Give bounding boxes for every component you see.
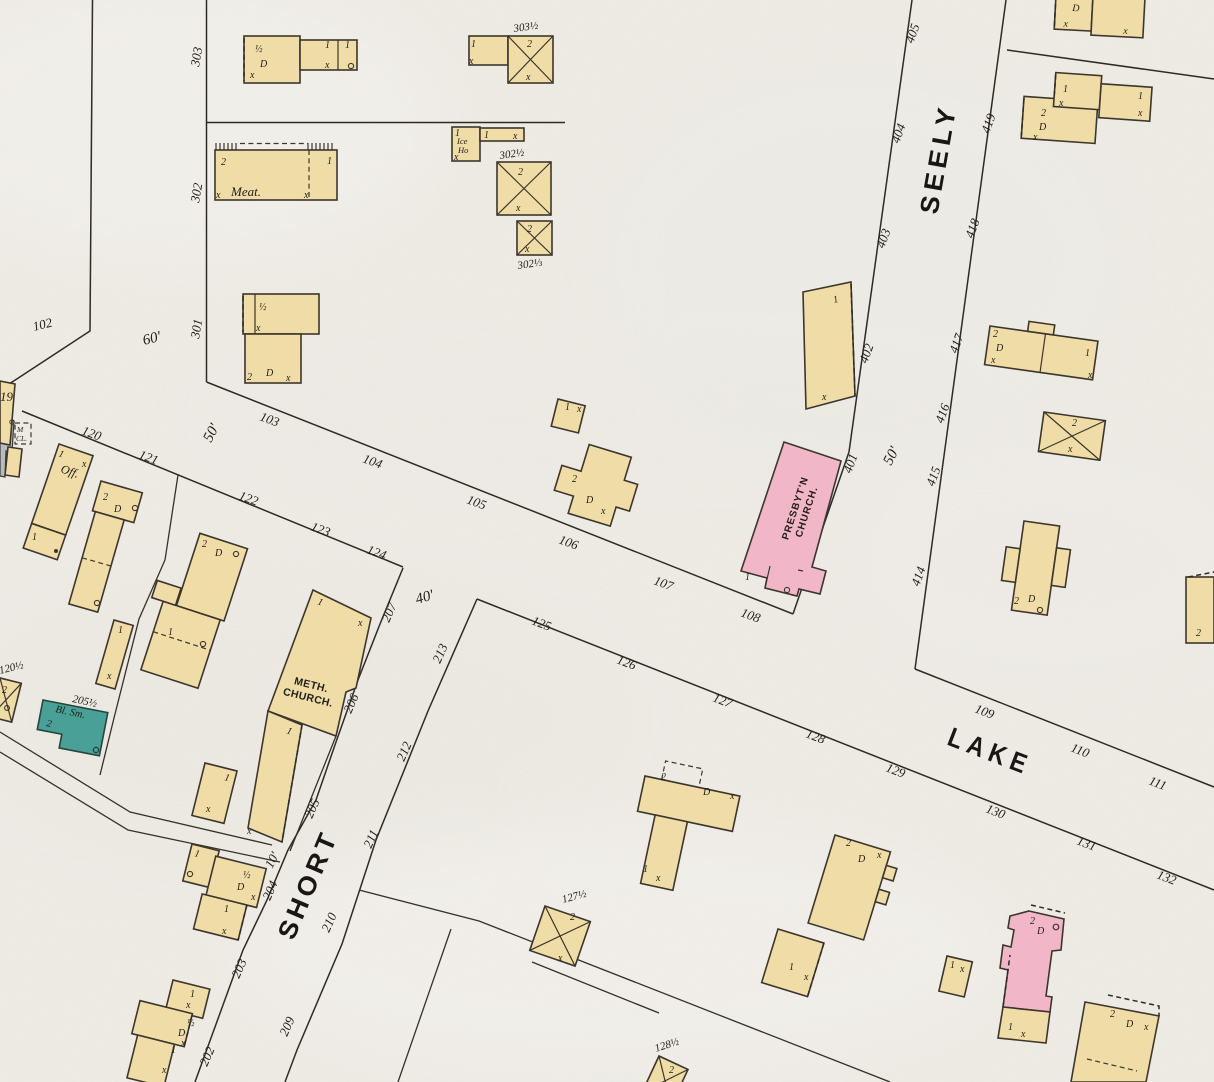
svg-text:½: ½ (243, 870, 251, 881)
svg-text:x: x (1058, 98, 1064, 109)
svg-text:½: ½ (187, 1018, 195, 1029)
svg-text:2: 2 (2, 685, 7, 696)
svg-text:x: x (106, 671, 112, 682)
svg-text:2: 2 (669, 1065, 674, 1076)
svg-text:1: 1 (171, 1045, 176, 1056)
svg-text:D: D (236, 882, 245, 893)
svg-text:x: x (249, 70, 255, 81)
svg-text:D: D (1027, 594, 1036, 605)
svg-text:2: 2 (1110, 1009, 1115, 1020)
svg-text:x: x (821, 392, 827, 403)
svg-text:½: ½ (255, 44, 263, 55)
svg-text:x: x (1143, 1022, 1149, 1033)
svg-text:½: ½ (259, 302, 267, 313)
svg-text:D: D (113, 504, 122, 515)
svg-text:2: 2 (527, 39, 532, 50)
svg-text:2: 2 (1014, 596, 1019, 607)
svg-text:M: M (16, 425, 24, 434)
svg-text:D: D (995, 343, 1004, 354)
svg-text:2: 2 (103, 492, 108, 503)
svg-text:D: D (1036, 926, 1045, 937)
svg-text:1: 1 (345, 40, 350, 51)
svg-text:2: 2 (202, 539, 207, 550)
svg-text:1: 1 (325, 40, 330, 51)
svg-text:2: 2 (993, 329, 998, 340)
svg-text:D: D (265, 368, 274, 379)
svg-text:x: x (285, 373, 291, 384)
svg-text:1: 1 (190, 989, 195, 1000)
svg-text:x: x (959, 964, 965, 975)
svg-text:2: 2 (247, 372, 252, 383)
svg-text:1: 1 (224, 904, 229, 915)
svg-text:2: 2 (527, 224, 532, 235)
svg-text:CL.: CL. (16, 434, 27, 443)
svg-text:x: x (246, 826, 252, 837)
svg-text:x: x (1087, 370, 1093, 381)
svg-text:2: 2 (518, 167, 523, 178)
svg-text:x: x (524, 244, 530, 255)
svg-text:1: 1 (789, 962, 794, 973)
svg-text:x: x (655, 873, 661, 884)
svg-text:2: 2 (1041, 108, 1046, 119)
svg-text:1: 1 (1008, 1022, 1013, 1033)
svg-text:2: 2 (1030, 916, 1035, 927)
svg-text:x: x (221, 926, 227, 937)
svg-text:x: x (515, 203, 521, 214)
svg-text:x: x (255, 323, 261, 334)
svg-text:D: D (702, 787, 711, 798)
svg-text:D: D (857, 854, 866, 865)
svg-text:Meat.: Meat. (230, 184, 261, 199)
svg-text:x: x (600, 506, 606, 517)
svg-text:x: x (215, 190, 221, 201)
svg-text:D: D (1071, 3, 1081, 14)
svg-text:x: x (803, 972, 809, 983)
svg-text:1: 1 (327, 156, 332, 167)
svg-text:x: x (250, 892, 256, 903)
svg-text:x: x (324, 60, 330, 71)
svg-text:1: 1 (745, 572, 750, 583)
svg-text:x: x (185, 1000, 191, 1011)
svg-text:x: x (576, 404, 582, 415)
svg-text:x: x (1067, 444, 1073, 455)
svg-text:1: 1 (168, 627, 173, 638)
svg-text:Ho: Ho (457, 145, 468, 155)
svg-text:1: 1 (1085, 348, 1090, 359)
svg-text:x: x (357, 618, 363, 629)
svg-text:x: x (729, 791, 735, 802)
svg-text:2: 2 (1072, 418, 1077, 429)
svg-text:x: x (990, 355, 996, 366)
svg-text:1: 1 (1063, 84, 1068, 95)
svg-text:D: D (1125, 1019, 1134, 1030)
svg-text:2: 2 (846, 838, 851, 849)
svg-text:1: 1 (565, 402, 570, 413)
svg-text:2: 2 (661, 772, 666, 783)
svg-text:1: 1 (32, 532, 37, 543)
svg-text:2: 2 (570, 912, 575, 923)
svg-text:x: x (1137, 108, 1143, 119)
svg-text:2: 2 (572, 474, 577, 485)
svg-text:1: 1 (950, 960, 955, 971)
svg-text:1: 1 (484, 130, 489, 141)
svg-text:D: D (214, 548, 223, 559)
svg-text:19: 19 (0, 389, 14, 404)
svg-text:1: 1 (471, 39, 476, 50)
svg-text:1: 1 (643, 864, 648, 875)
svg-text:x: x (525, 72, 531, 83)
svg-text:x: x (876, 850, 882, 861)
svg-text:x: x (468, 56, 474, 67)
svg-text:x: x (557, 953, 563, 964)
svg-text:D: D (1038, 122, 1047, 133)
svg-text:x: x (180, 1038, 186, 1049)
svg-text:x: x (512, 131, 518, 142)
svg-text:2: 2 (1196, 628, 1201, 639)
svg-text:x: x (81, 459, 87, 470)
svg-text:x: x (303, 190, 309, 201)
svg-text:D: D (585, 495, 594, 506)
svg-text:2: 2 (221, 157, 226, 168)
svg-text:x: x (1032, 132, 1038, 143)
svg-text:1: 1 (1138, 91, 1143, 102)
svg-text:x: x (1020, 1029, 1026, 1040)
svg-text:1: 1 (118, 625, 123, 636)
svg-text:x: x (161, 1065, 167, 1076)
svg-text:x: x (205, 804, 211, 815)
svg-text:D: D (259, 59, 268, 70)
svg-text:x: x (453, 152, 459, 163)
